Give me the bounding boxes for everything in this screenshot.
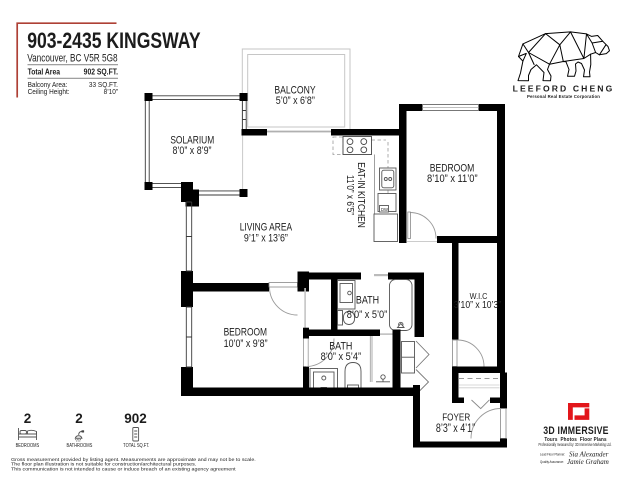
svg-text:Vancouver, BC V5R 5G8: Vancouver, BC V5R 5G8 [27,53,117,65]
svg-text:Ceiling Height:: Ceiling Height: [28,89,70,97]
svg-text:8’3” x 4’1”: 8’3” x 4’1” [436,423,476,435]
svg-text:8’0” x 5’4”: 8’0” x 5’4” [321,351,361,363]
svg-text:BEDROOMS: BEDROOMS [16,443,40,449]
svg-text:8’0” x 5’0”: 8’0” x 5’0” [347,309,387,321]
svg-text:10’0” x 9’8”: 10’0” x 9’8” [224,339,268,351]
svg-text:3D IMMERSIVE: 3D IMMERSIVE [543,425,609,437]
svg-text:Lead Floor Planner:: Lead Floor Planner: [540,452,565,457]
svg-text:8’0” x 8’9”: 8’0” x 8’9” [172,146,211,158]
svg-text:This communication is not inte: This communication is not intended to ca… [11,466,236,472]
svg-text:LEEFORD CHENG: LEEFORD CHENG [513,84,615,94]
svg-text:8’10” x 11’0”: 8’10” x 11’0” [427,173,478,185]
svg-text:Professionally measured by: 3D: Professionally measured by: 3D Immersive… [539,443,612,448]
svg-text:3’10” x 10’3”: 3’10” x 10’3” [454,300,501,311]
svg-text:BEDROOM: BEDROOM [224,326,267,338]
svg-text:5’0” x 6’8”: 5’0” x 6’8” [276,95,315,107]
svg-text:8’10”: 8’10” [104,89,119,97]
svg-text:11’0” x 6’5”: 11’0” x 6’5” [345,175,356,215]
svg-text:Quality Assurance:: Quality Assurance: [540,459,564,464]
svg-text:902: 902 [124,411,147,426]
svg-text:Jamie Graham: Jamie Graham [567,458,609,466]
svg-text:FOYER: FOYER [442,412,471,423]
svg-text:TOTAL SQ.FT.: TOTAL SQ.FT. [123,443,149,449]
svg-text:903-2435 KINGSWAY: 903-2435 KINGSWAY [27,29,200,53]
svg-text:2: 2 [75,411,83,426]
svg-text:BATHROOMS: BATHROOMS [66,443,92,449]
svg-text:Total Area: Total Area [28,67,61,77]
svg-text:902 SQ.FT.: 902 SQ.FT. [84,67,118,77]
svg-text:2: 2 [24,411,32,426]
svg-text:LIVING AREA: LIVING AREA [240,221,293,233]
svg-text:9’1” x 13’6”: 9’1” x 13’6” [244,233,288,245]
svg-text:BATH: BATH [356,295,379,307]
svg-text:Personal Real Estate Corporati: Personal Real Estate Corporation [527,94,600,99]
svg-text:DW: DW [381,207,388,212]
